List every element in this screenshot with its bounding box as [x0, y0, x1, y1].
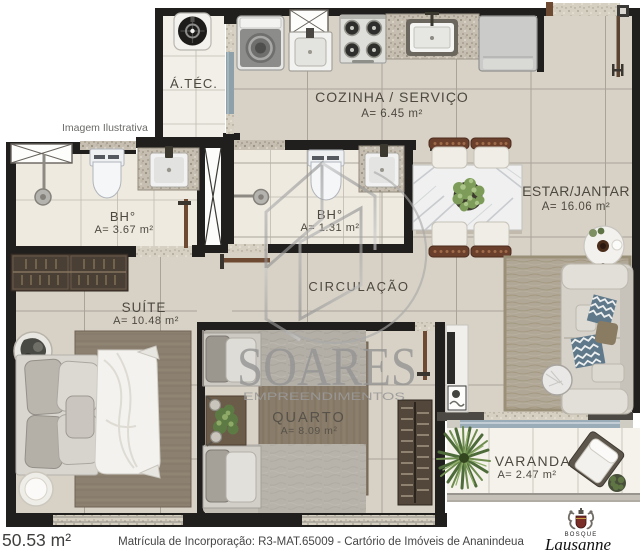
svg-text:A= 6.45 m²: A= 6.45 m² [361, 108, 423, 120]
svg-text:Lausanne: Lausanne [544, 535, 612, 553]
svg-text:A= 8.09 m²: A= 8.09 m² [281, 425, 338, 437]
svg-text:SUÍTE: SUÍTE [122, 300, 167, 315]
svg-text:A= 10.48 m²: A= 10.48 m² [113, 315, 179, 327]
svg-text:VARANDA: VARANDA [495, 453, 571, 469]
svg-text:EMPREENDIMENTOS: EMPREENDIMENTOS [243, 391, 405, 403]
svg-text:SOARES: SOARES [237, 336, 417, 397]
svg-text:QUARTO: QUARTO [272, 410, 346, 426]
svg-text:A= 3.67 m²: A= 3.67 m² [94, 224, 153, 236]
svg-text:COZINHA / SERVIÇO: COZINHA / SERVIÇO [315, 89, 469, 105]
svg-text:Imagem Ilustrativa: Imagem Ilustrativa [62, 122, 148, 134]
svg-text:ESTAR/JANTAR: ESTAR/JANTAR [522, 183, 630, 199]
svg-text:A= 2.47 m²: A= 2.47 m² [497, 469, 556, 481]
svg-text:A= 16.06 m²: A= 16.06 m² [542, 201, 610, 213]
svg-text:50.53 m²: 50.53 m² [2, 530, 71, 550]
svg-text:Á.TÉC.: Á.TÉC. [170, 76, 218, 91]
svg-text:BH°: BH° [110, 209, 136, 224]
svg-text:Matrícula de Incorporação: R3-: Matrícula de Incorporação: R3-MAT.65009 … [118, 536, 524, 548]
